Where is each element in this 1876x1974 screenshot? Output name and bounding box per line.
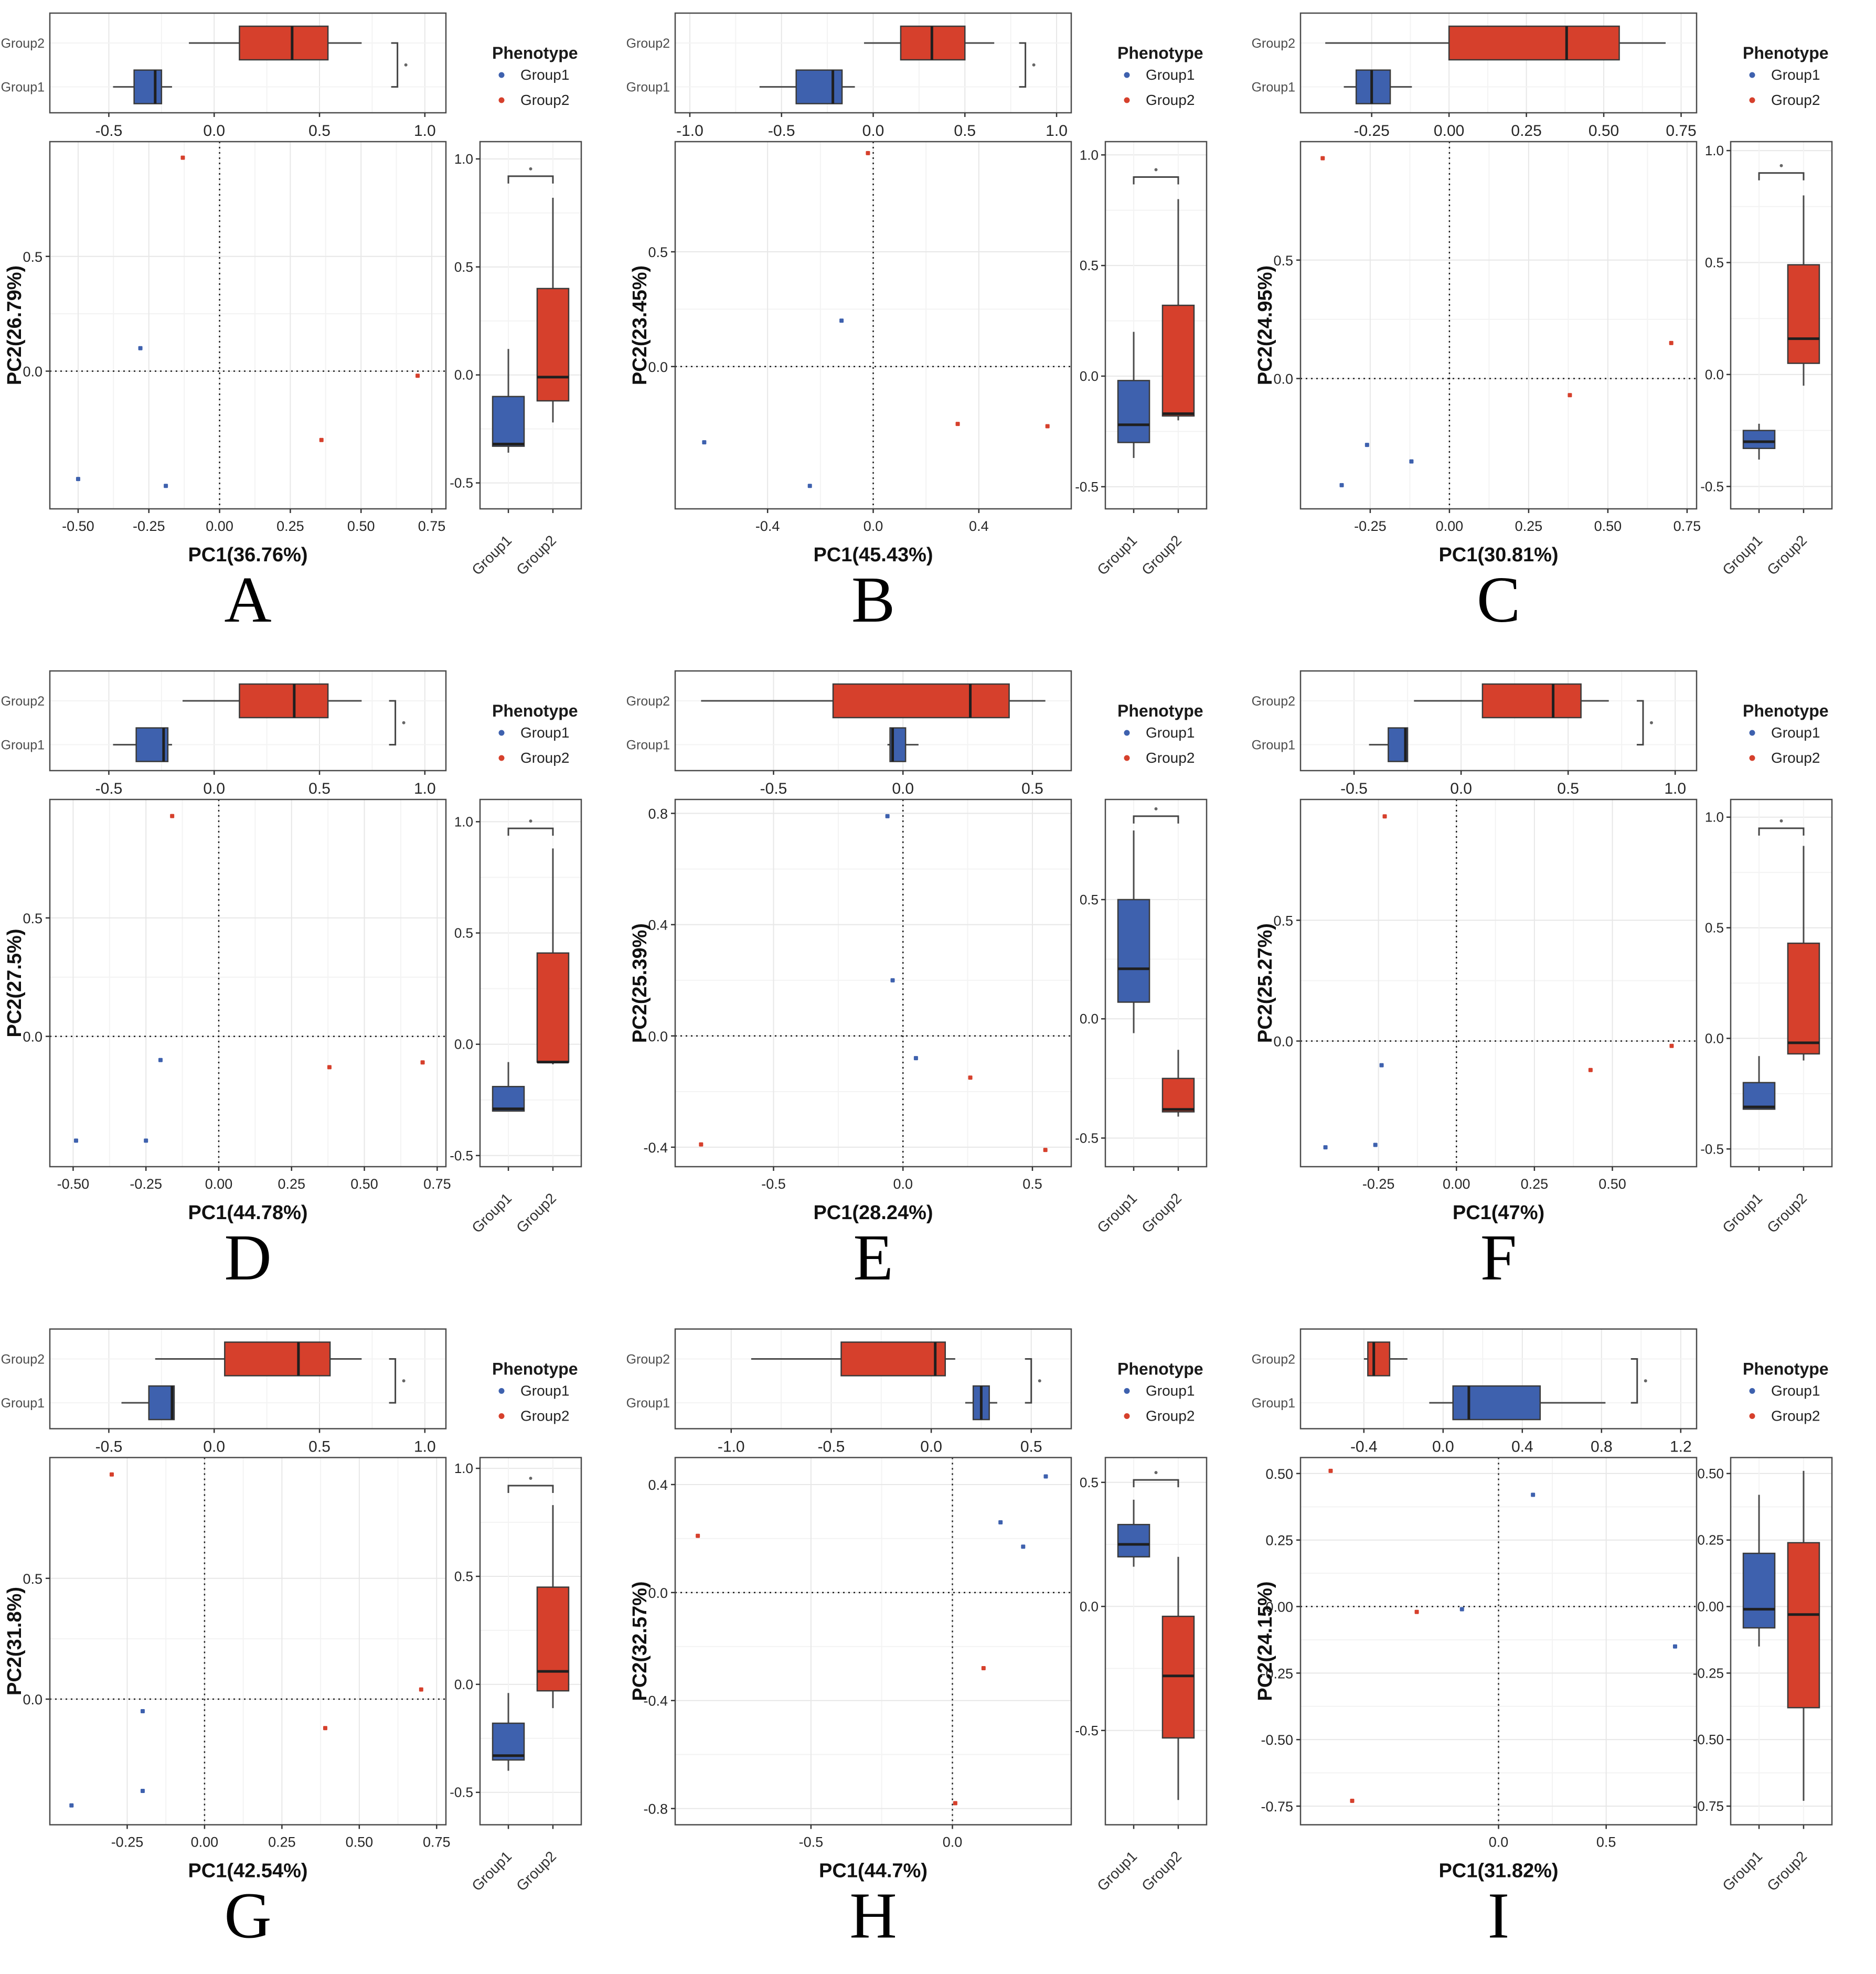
top-box-tick-label: -1.0 [676, 122, 703, 140]
legend-item-label: Group1 [520, 1383, 569, 1399]
scatter-x-tick-label: 0.25 [1521, 1176, 1549, 1192]
panel-F: Group2Group1-0.50.00.51.0PhenotypeGroup1… [1251, 658, 1876, 1316]
legend-swatch-group2-icon [1750, 98, 1755, 103]
right-box-tick-label: 0.5 [454, 1568, 473, 1584]
top-box-tick-label: 1.0 [414, 122, 436, 140]
panel-chart-E: Group2Group1-0.50.00.5PhenotypeGroup1Gro… [625, 658, 1251, 1316]
right-box-group-label: Group1 [468, 532, 515, 578]
panel-E: Group2Group1-0.50.00.5PhenotypeGroup1Gro… [625, 658, 1251, 1316]
legend-swatch-group2-icon [499, 1413, 505, 1419]
scatter-x-tick-label: 0.50 [1594, 518, 1622, 534]
scatter-y-tick-label: 0.8 [648, 806, 668, 822]
top-box-tick-label: 0.5 [308, 780, 331, 797]
scatter-x-tick-label: 0.00 [1436, 518, 1464, 534]
legend-item-label: Group2 [520, 92, 569, 108]
right-box-tick-label: -0.5 [1700, 1141, 1724, 1157]
right-box-group-label: Group2 [513, 1848, 559, 1894]
significance-marker [1155, 1471, 1158, 1474]
scatter-point-group1 [891, 978, 895, 983]
scatter-point-group2 [419, 1688, 423, 1692]
panel-letter: H [849, 1880, 897, 1952]
scatter-y-tick-label: 0.5 [1273, 253, 1293, 269]
scatter-x-tick-label: -0.5 [761, 1176, 786, 1192]
legend-swatch-group2-icon [1124, 98, 1130, 103]
legend-item-label: Group2 [1771, 750, 1820, 766]
right-box-tick-label: 0.0 [1705, 367, 1724, 382]
legend-item-label: Group2 [1146, 1408, 1195, 1424]
right-box-group1 [493, 1086, 524, 1111]
top-box-tick-label: -0.5 [760, 780, 787, 797]
top-box-row-label: Group1 [1, 1396, 45, 1411]
scatter-y-tick-label: 0.0 [648, 1585, 668, 1601]
right-box-group1 [1118, 1524, 1149, 1556]
legend-swatch-group1-icon [1750, 1388, 1755, 1394]
legend-item-label: Group1 [1771, 67, 1820, 83]
scatter-y-tick-label: 0.50 [1265, 1466, 1293, 1482]
scatter-point-group1 [141, 1709, 145, 1713]
panel-G: Group2Group1-0.50.00.51.0PhenotypeGroup1… [0, 1316, 625, 1974]
scatter-point-group2 [180, 156, 185, 160]
top-box-tick-label: 0.5 [1557, 780, 1579, 797]
scatter-x-tick-label: 0.00 [205, 1176, 233, 1192]
right-box-group-label: Group2 [1138, 532, 1185, 578]
scatter-point-group1 [1340, 483, 1344, 487]
legend-swatch-group1-icon [499, 72, 505, 78]
right-box-group-label: Group1 [468, 1190, 515, 1236]
scatter-point-group2 [1350, 1799, 1354, 1803]
scatter-x-tick-label: -0.25 [130, 1176, 162, 1192]
top-box-tick-label: 0.5 [1020, 1438, 1042, 1456]
legend-swatch-group2-icon [1750, 1413, 1755, 1419]
right-box-group-label: Group1 [1719, 1848, 1765, 1894]
top-box-tick-label: 0.0 [862, 122, 884, 140]
top-box-tick-label: 0.8 [1591, 1438, 1613, 1456]
scatter-x-tick-label: 0.50 [350, 1176, 378, 1192]
right-box-tick-label: 0.0 [454, 1677, 473, 1692]
legend-title: Phenotype [492, 1360, 578, 1379]
legend-swatch-group1-icon [499, 730, 505, 736]
legend-swatch-group2-icon [1750, 755, 1755, 761]
right-box-group-label: Group1 [1719, 532, 1765, 578]
scatter-x-tick-label: -0.50 [57, 1176, 90, 1192]
top-box-group1 [796, 70, 842, 104]
scatter-x-tick-label: 0.00 [206, 518, 233, 534]
legend-item-label: Group1 [1146, 1383, 1195, 1399]
scatter-point-group2 [1043, 1148, 1048, 1152]
scatter-point-group2 [1669, 341, 1674, 345]
x-axis-title: PC1(47%) [1453, 1202, 1544, 1224]
y-axis-title: PC2(26.79%) [4, 265, 26, 385]
right-box-tick-label: 1.0 [454, 814, 473, 829]
top-box-row-label: Group2 [1252, 1352, 1295, 1367]
top-box-tick-label: 1.0 [414, 1438, 436, 1456]
right-box-tick-label: 0.25 [1697, 1532, 1724, 1548]
top-box-tick-label: 0.4 [1511, 1438, 1533, 1456]
significance-marker [529, 167, 532, 170]
right-box-tick-label: 0.5 [1080, 892, 1099, 908]
legend-title: Phenotype [1117, 701, 1203, 720]
right-box-group1 [1118, 380, 1149, 442]
scatter-x-tick-label: 0.25 [1515, 518, 1543, 534]
legend-item-label: Group2 [1771, 1408, 1820, 1424]
scatter-x-tick-label: 0.0 [1489, 1834, 1509, 1850]
scatter-point-group1 [144, 1138, 148, 1143]
right-box-tick-label: -0.5 [450, 1785, 473, 1800]
significance-marker [402, 721, 406, 724]
top-box-tick-label: -0.5 [95, 780, 123, 797]
right-box-group2 [1788, 265, 1819, 364]
panel-I: Group2Group1-0.40.00.40.81.2PhenotypeGro… [1251, 1316, 1876, 1974]
y-axis-title: PC2(23.45%) [629, 265, 651, 385]
right-box-group-label: Group2 [1764, 1848, 1810, 1894]
top-box-group2 [833, 684, 1009, 718]
right-box-group-label: Group1 [1094, 1190, 1140, 1236]
scatter-x-tick-label: 0.50 [347, 518, 375, 534]
scatter-y-tick-label: 0.4 [648, 917, 668, 933]
scatter-point-group2 [1383, 814, 1387, 818]
scatter-point-group1 [158, 1058, 163, 1062]
top-box-tick-label: 1.0 [1046, 122, 1068, 140]
scatter-x-tick-label: -0.25 [111, 1834, 144, 1850]
scatter-y-tick-label: 0.0 [1273, 1034, 1293, 1050]
top-box-group2 [841, 1342, 945, 1376]
scatter-point-group1 [1373, 1143, 1378, 1147]
top-box-tick-label: 0.5 [954, 122, 976, 140]
scatter-y-tick-label: 0.0 [23, 1692, 42, 1708]
scatter-point-group1 [141, 1789, 145, 1793]
scatter-point-group2 [1589, 1068, 1593, 1072]
panel-letter: F [1480, 1222, 1517, 1294]
top-box-tick-label: -0.5 [768, 122, 795, 140]
significance-marker [402, 1379, 406, 1382]
x-axis-title: PC1(44.78%) [188, 1202, 307, 1224]
scatter-y-tick-label: -0.75 [1261, 1799, 1293, 1815]
legend-item-label: Group1 [520, 724, 569, 741]
x-axis-title: PC1(44.7%) [819, 1860, 928, 1882]
right-box-tick-label: 0.00 [1697, 1599, 1724, 1615]
right-box-group-label: Group1 [1094, 532, 1140, 578]
scatter-point-group2 [110, 1473, 114, 1477]
right-box-group-label: Group2 [1764, 1190, 1810, 1236]
panel-D: Group2Group1-0.50.00.51.0PhenotypeGroup1… [0, 658, 625, 1316]
right-box-group1 [1743, 431, 1775, 449]
legend-swatch-group1-icon [1750, 730, 1755, 736]
scatter-x-tick-label: 0.0 [893, 1176, 913, 1192]
scatter-y-tick-label: 0.0 [648, 1029, 668, 1044]
scatter-point-group2 [1415, 1610, 1419, 1614]
legend-title: Phenotype [1743, 701, 1829, 720]
scatter-y-tick-label: 0.5 [1273, 913, 1293, 929]
right-box-tick-label: 0.50 [1697, 1466, 1724, 1481]
panel-chart-F: Group2Group1-0.50.00.51.0PhenotypeGroup1… [1251, 658, 1876, 1316]
scatter-point-group2 [1669, 1044, 1674, 1048]
significance-marker [1032, 63, 1036, 67]
scatter-point-group1 [1460, 1607, 1464, 1612]
right-box-group2 [1788, 1543, 1819, 1708]
scatter-point-group2 [968, 1075, 973, 1080]
right-box-tick-label: 0.0 [1080, 368, 1099, 384]
legend-swatch-group1-icon [1124, 730, 1130, 736]
y-axis-title: PC2(24.95%) [1254, 265, 1276, 385]
right-box-tick-label: 0.5 [1080, 258, 1099, 273]
y-axis-title: PC2(25.39%) [629, 923, 651, 1043]
top-box-tick-label: 0.0 [1450, 780, 1472, 797]
scatter-y-tick-label: -0.8 [643, 1801, 668, 1817]
top-box-tick-label: 0.5 [308, 1438, 331, 1456]
right-box-tick-label: -0.5 [450, 475, 473, 491]
significance-marker [1650, 721, 1653, 724]
top-box-tick-label: 1.0 [1664, 780, 1686, 797]
significance-marker [1155, 807, 1158, 810]
right-box-tick-label: 0.0 [1080, 1011, 1099, 1027]
legend-title: Phenotype [1743, 44, 1829, 62]
scatter-point-group2 [415, 374, 420, 378]
top-box-tick-label: 0.5 [308, 122, 331, 140]
top-box-row-label: Group2 [1252, 694, 1295, 709]
significance-marker [529, 1477, 532, 1480]
right-box-tick-label: 1.0 [1705, 809, 1724, 825]
scatter-x-tick-label: 0.50 [346, 1834, 374, 1850]
significance-marker [1644, 1379, 1647, 1382]
scatter-point-group1 [1365, 443, 1369, 447]
scatter-point-group1 [1380, 1063, 1384, 1068]
top-box-tick-label: -0.4 [1350, 1438, 1378, 1456]
panel-letter: D [224, 1222, 271, 1294]
top-box-group2 [1449, 26, 1619, 60]
right-box-tick-label: 1.0 [454, 1460, 473, 1476]
top-box-tick-label: 0.25 [1511, 122, 1541, 140]
top-box-tick-label: -0.5 [1340, 780, 1368, 797]
right-box-group2 [537, 1587, 569, 1691]
scatter-point-group2 [1568, 393, 1572, 397]
right-box-group2 [537, 953, 569, 1062]
right-box-group-label: Group2 [1764, 532, 1810, 578]
scatter-y-tick-label: -0.50 [1261, 1732, 1293, 1748]
top-box-tick-label: 0.0 [1432, 1438, 1454, 1456]
x-axis-title: PC1(36.76%) [188, 544, 307, 566]
top-box-tick-label: 1.2 [1670, 1438, 1692, 1456]
legend-title: Phenotype [492, 701, 578, 720]
right-box-tick-label: -0.50 [1693, 1732, 1724, 1747]
right-box-tick-label: -0.5 [1700, 478, 1724, 494]
scatter-point-group2 [982, 1666, 986, 1670]
scatter-point-group1 [74, 1138, 78, 1143]
top-box-row-label: Group2 [1, 1352, 45, 1367]
panel-chart-C: Group2Group1-0.250.000.250.500.75Phenoty… [1251, 0, 1876, 658]
scatter-point-group2 [1328, 1469, 1333, 1473]
top-box-tick-label: -1.0 [718, 1438, 745, 1456]
scatter-x-tick-label: 0.75 [1674, 518, 1701, 534]
top-box-group1 [134, 70, 162, 104]
x-axis-title: PC1(45.43%) [813, 544, 933, 566]
significance-marker [1038, 1379, 1041, 1382]
scatter-point-group2 [696, 1534, 700, 1538]
scatter-x-tick-label: 0.50 [1598, 1176, 1626, 1192]
scatter-point-group1 [1673, 1645, 1677, 1649]
right-box-group2 [1788, 943, 1819, 1054]
right-box-group-label: Group2 [513, 1190, 559, 1236]
right-box-tick-label: 0.0 [454, 367, 473, 383]
legend-item-label: Group1 [1771, 1383, 1820, 1399]
right-box-group2 [1163, 305, 1194, 416]
right-box-group-label: Group1 [1094, 1848, 1140, 1894]
pca-panels-grid: Group2Group1-0.50.00.51.0PhenotypeGroup1… [0, 0, 1876, 1974]
panel-letter: I [1488, 1880, 1510, 1952]
scatter-point-group2 [866, 151, 870, 155]
top-box-tick-label: 0.75 [1666, 122, 1696, 140]
scatter-point-group2 [327, 1065, 332, 1069]
scatter-point-group1 [998, 1520, 1003, 1524]
top-box-tick-label: 0.0 [920, 1438, 942, 1456]
top-box-row-label: Group2 [626, 694, 670, 709]
right-box-group-label: Group2 [513, 532, 559, 578]
scatter-point-group1 [702, 440, 706, 444]
top-box-row-label: Group2 [1252, 36, 1295, 51]
legend-swatch-group1-icon [1124, 1388, 1130, 1394]
legend-item-label: Group2 [520, 750, 569, 766]
right-box-tick-label: 0.5 [454, 925, 473, 941]
right-box-tick-label: -0.5 [1075, 1130, 1099, 1146]
scatter-x-tick-label: -0.50 [62, 518, 94, 534]
y-axis-title: PC2(25.27%) [1254, 923, 1276, 1043]
scatter-x-tick-label: 0.5 [1596, 1834, 1616, 1850]
scatter-x-tick-label: 0.75 [418, 518, 446, 534]
right-box-tick-label: 0.5 [1705, 254, 1724, 270]
top-box-row-label: Group2 [1, 694, 45, 709]
right-box-tick-label: -0.5 [450, 1148, 473, 1164]
panel-C: Group2Group1-0.250.000.250.500.75Phenoty… [1251, 0, 1876, 658]
y-axis-title: PC2(32.57%) [629, 1581, 651, 1701]
scatter-point-group2 [956, 422, 960, 426]
y-axis-title: PC2(31.8%) [4, 1587, 26, 1695]
panel-letter: A [224, 564, 271, 636]
scatter-x-tick-label: 0.5 [1022, 1176, 1042, 1192]
scatter-point-group1 [1324, 1145, 1328, 1149]
scatter-y-tick-label: 0.25 [1265, 1533, 1293, 1549]
legend-item-label: Group1 [1771, 724, 1820, 741]
right-box-tick-label: 0.5 [1705, 920, 1724, 936]
panel-A: Group2Group1-0.50.00.51.0PhenotypeGroup1… [0, 0, 625, 658]
panel-chart-A: Group2Group1-0.50.00.51.0PhenotypeGroup1… [0, 0, 625, 658]
significance-marker [1780, 164, 1783, 167]
scatter-x-tick-label: 0.75 [423, 1176, 451, 1192]
panel-chart-B: Group2Group1-1.0-0.50.00.51.0PhenotypeGr… [625, 0, 1251, 658]
legend-item-label: Group2 [520, 1408, 569, 1424]
right-box-group-label: Group2 [1138, 1190, 1185, 1236]
scatter-y-tick-label: 0.5 [23, 1571, 42, 1587]
scatter-point-group1 [1043, 1475, 1048, 1479]
scatter-point-group1 [914, 1056, 918, 1060]
top-box-tick-label: -0.25 [1353, 122, 1389, 140]
scatter-point-group1 [839, 318, 844, 323]
top-box-row-label: Group2 [1, 36, 45, 51]
legend-swatch-group1-icon [499, 1388, 505, 1394]
top-box-group2 [239, 26, 328, 60]
right-box-tick-label: -0.5 [1075, 479, 1099, 495]
top-box-group2 [1483, 684, 1581, 718]
scatter-point-group2 [1320, 156, 1325, 161]
right-box-group1 [1118, 900, 1149, 1002]
scatter-point-group2 [170, 814, 174, 818]
top-box-group2 [239, 684, 328, 718]
scatter-point-group2 [421, 1060, 425, 1064]
scatter-x-tick-label: 0.25 [268, 1834, 296, 1850]
top-box-tick-label: 0.0 [203, 1438, 225, 1456]
top-box-tick-label: 0.0 [203, 122, 225, 140]
scatter-y-tick-label: 0.4 [648, 1477, 668, 1493]
panel-chart-I: Group2Group1-0.40.00.40.81.2PhenotypeGro… [1251, 1316, 1876, 1974]
right-box-tick-label: 0.0 [1080, 1598, 1099, 1614]
top-box-row-label: Group1 [1, 80, 45, 95]
panel-letter: B [851, 564, 895, 636]
legend-swatch-group1-icon [1750, 72, 1755, 78]
panel-letter: E [853, 1222, 893, 1294]
scatter-point-group2 [319, 438, 324, 442]
top-box-row-label: Group1 [1252, 1396, 1295, 1411]
scatter-x-tick-label: 0.25 [276, 518, 304, 534]
top-box-row-label: Group1 [626, 738, 670, 753]
significance-marker [529, 819, 532, 823]
top-box-tick-label: 0.0 [203, 780, 225, 797]
right-box-group1 [1743, 1083, 1775, 1109]
top-box-row-label: Group2 [626, 1352, 670, 1367]
significance-marker [1780, 819, 1783, 823]
scatter-y-tick-label: 0.5 [23, 249, 42, 265]
top-box-group1 [149, 1386, 174, 1420]
legend-item-label: Group1 [520, 67, 569, 83]
significance-marker [404, 63, 408, 67]
panel-H: Group2Group1-1.0-0.50.00.5PhenotypeGroup… [625, 1316, 1251, 1974]
legend-swatch-group2-icon [1124, 1413, 1130, 1419]
scatter-x-tick-label: -0.4 [755, 518, 780, 534]
panel-chart-G: Group2Group1-0.50.00.51.0PhenotypeGroup1… [0, 1316, 625, 1974]
scatter-x-tick-label: 0.4 [969, 518, 989, 534]
panel-chart-D: Group2Group1-0.50.00.51.0PhenotypeGroup1… [0, 658, 625, 1316]
right-box-group-label: Group1 [1719, 1190, 1765, 1236]
top-box-tick-label: -0.5 [95, 1438, 123, 1456]
top-box-row-label: Group2 [626, 36, 670, 51]
y-axis-title: PC2(24.15%) [1254, 1581, 1276, 1701]
scatter-point-group1 [1021, 1544, 1025, 1549]
scatter-x-tick-label: -0.25 [133, 518, 165, 534]
legend-item-label: Group1 [1146, 67, 1195, 83]
right-box-tick-label: -0.25 [1693, 1665, 1724, 1681]
right-box-tick-label: 0.0 [1705, 1030, 1724, 1046]
panel-letter: G [224, 1880, 271, 1952]
scatter-point-group1 [138, 346, 143, 350]
x-axis-title: PC1(28.24%) [813, 1202, 933, 1224]
top-box-tick-label: 0.50 [1589, 122, 1619, 140]
top-box-row-label: Group1 [626, 80, 670, 95]
right-box-tick-label: -0.5 [1075, 1723, 1099, 1738]
scatter-point-group1 [1409, 460, 1413, 464]
top-box-group1 [1453, 1386, 1540, 1420]
scatter-point-group1 [76, 477, 80, 481]
scatter-point-group1 [808, 484, 812, 488]
right-box-tick-label: 0.0 [454, 1037, 473, 1052]
scatter-point-group1 [164, 484, 168, 488]
scatter-x-tick-label: 0.75 [423, 1834, 451, 1850]
right-box-tick-label: 1.0 [1705, 143, 1724, 158]
legend-swatch-group2-icon [1124, 755, 1130, 761]
scatter-y-tick-label: 0.0 [23, 364, 42, 380]
scatter-y-tick-label: -0.4 [643, 1140, 668, 1156]
top-box-group1 [1356, 70, 1390, 104]
top-box-tick-label: 0.5 [1021, 780, 1043, 797]
legend-title: Phenotype [1117, 44, 1203, 62]
x-axis-title: PC1(42.54%) [188, 1860, 307, 1882]
scatter-point-group1 [69, 1804, 73, 1808]
